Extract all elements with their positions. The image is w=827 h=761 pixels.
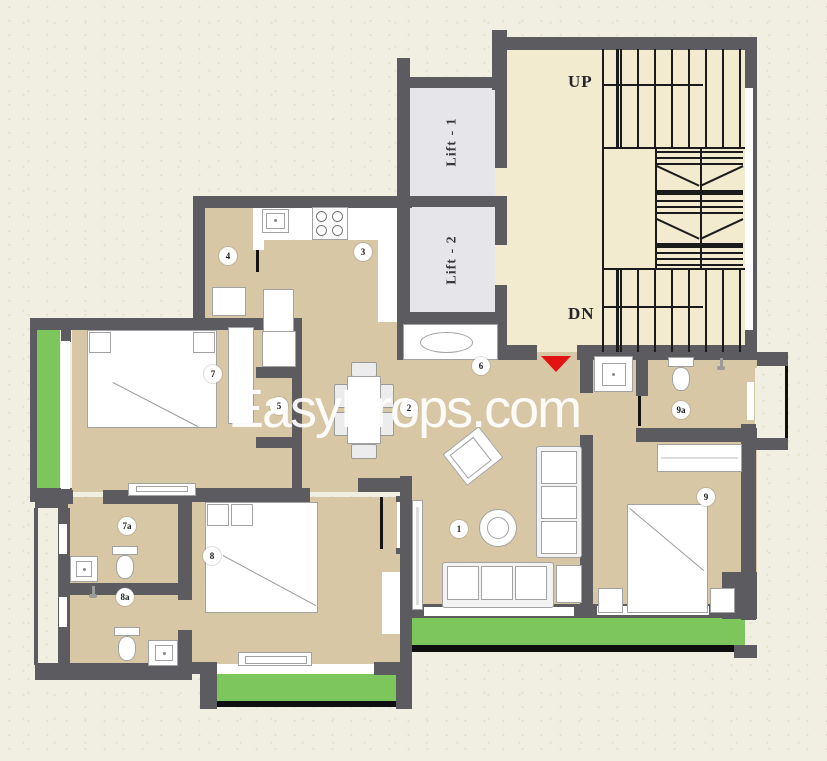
stair-tread-line [603, 84, 703, 86]
wall [397, 77, 507, 88]
window [61, 341, 70, 489]
stairs-down-label: DN [568, 304, 595, 324]
stair-tread-line [722, 270, 724, 352]
wall [734, 645, 757, 658]
room-label-1: 1 [450, 520, 468, 538]
stair-tread-line [616, 270, 619, 352]
room-label-4: 4 [219, 247, 237, 265]
stair-tread-line [657, 258, 743, 260]
toilet-icon [112, 546, 138, 555]
wall [497, 345, 537, 360]
stairs-up-label: UP [568, 72, 593, 92]
stair-tread-line [671, 270, 673, 352]
wall [396, 496, 405, 502]
door-leaf [380, 497, 383, 549]
furniture [487, 517, 509, 539]
wall [178, 488, 310, 502]
sofa-cushion [481, 566, 513, 600]
store-shelf [212, 287, 246, 316]
stair-tread-line [657, 252, 743, 254]
kitchen-sink-icon [262, 209, 289, 233]
window [745, 88, 753, 330]
wall [400, 476, 412, 675]
stair-tread-line [620, 49, 622, 147]
wall [495, 88, 507, 168]
pillow [231, 504, 253, 526]
shape [661, 457, 738, 459]
stair-tread-line [705, 49, 707, 147]
shape [332, 225, 343, 236]
duct-left [38, 508, 58, 665]
window [747, 382, 754, 420]
room-label-9a: 9a [672, 401, 690, 419]
stove-icon [312, 207, 348, 240]
door-leaf [638, 396, 641, 426]
sofa-cushion [447, 566, 479, 600]
bed-9 [627, 504, 708, 613]
wall [507, 37, 757, 50]
stair-tread-line [657, 243, 743, 248]
stair-tread-line [602, 147, 747, 149]
balcony-bottom [412, 618, 745, 645]
balcony-edge-line [215, 701, 400, 707]
wall [396, 548, 405, 554]
balcony-left [36, 328, 60, 490]
wall [256, 367, 302, 378]
stair-tread-line [657, 264, 743, 266]
sofa-cushion [541, 451, 577, 484]
stair-tread-line [620, 270, 622, 352]
wall [580, 357, 593, 393]
shape [316, 211, 327, 222]
stair-tread-line [671, 49, 673, 147]
wall [193, 196, 412, 208]
shape [83, 568, 86, 571]
balcony-bedroom8 [215, 674, 400, 701]
washbasin-icon [594, 356, 633, 392]
wall [34, 508, 38, 665]
stair-tread-line [722, 49, 724, 147]
wall [200, 662, 217, 709]
kitchen-counter-right [378, 240, 398, 322]
wall [35, 497, 68, 508]
stair-tread-line [657, 190, 743, 195]
toilet-icon [114, 627, 140, 636]
lift-2-label: Lift - 2 [445, 235, 461, 284]
shape [316, 225, 327, 236]
side-table [598, 588, 623, 613]
stair-tread-line [616, 49, 619, 147]
stair-tread-line [739, 49, 741, 147]
wall [396, 662, 412, 709]
stair-tread-line [705, 270, 707, 352]
toilet-bowl-icon [116, 555, 134, 579]
coffee-table-icon [479, 509, 517, 547]
pillow [207, 504, 229, 526]
duct-edge-line [785, 366, 788, 441]
wall [495, 196, 507, 245]
tap-icon [92, 586, 95, 596]
stair-tread-line [657, 151, 743, 153]
sofa-cushion [515, 566, 547, 600]
shape [416, 507, 419, 605]
room-label-8: 8 [203, 547, 221, 565]
stair-tread-line [688, 49, 690, 147]
stair-tread-line [637, 49, 639, 147]
stair-tread-line [602, 268, 747, 270]
refrigerator [263, 289, 294, 336]
wall [748, 438, 788, 450]
tv-unit [412, 500, 423, 610]
lift-1: Lift - 1 [410, 88, 495, 196]
side-table [710, 588, 735, 613]
room-label-3: 3 [354, 243, 372, 261]
lift-1-label: Lift - 1 [445, 117, 461, 166]
wall [636, 428, 757, 442]
wall [193, 196, 205, 330]
shape [612, 373, 615, 376]
wash-basin-icon [420, 332, 473, 353]
wall [178, 490, 192, 600]
stair-tread-line [657, 212, 743, 214]
entrance-arrow-icon [541, 356, 571, 372]
sofa-cushion [541, 521, 577, 554]
duct-right [755, 368, 785, 439]
wall [757, 352, 788, 366]
stair-tread-line [657, 163, 743, 165]
room-label-7: 7 [204, 365, 222, 383]
stair-tread-line [603, 306, 703, 308]
window [424, 607, 574, 616]
room-label-8a: 8a [116, 588, 134, 606]
toilet-icon [668, 357, 694, 367]
balcony-edge-line [412, 645, 734, 652]
door-leaf [256, 250, 259, 272]
shape [332, 211, 343, 222]
pillow [193, 332, 215, 353]
stair-tread-line [637, 270, 639, 352]
wall [292, 446, 302, 494]
room-label-7a: 7a [118, 517, 136, 535]
watermark: EasyProps.com [228, 378, 580, 440]
wardrobe-5 [262, 331, 296, 367]
pillow [89, 332, 111, 353]
stair-tread-line [654, 270, 656, 352]
toilet-bowl-icon [672, 367, 690, 391]
stair-tread-line [657, 200, 743, 202]
wall [30, 325, 37, 495]
wall [397, 196, 507, 207]
dresser-8 [238, 652, 312, 666]
stair-tread-line [688, 270, 690, 352]
shape [274, 219, 277, 222]
sofa-cushion [541, 486, 577, 519]
wall [397, 312, 507, 324]
window [59, 524, 67, 554]
toilet-bowl-icon [118, 636, 136, 661]
stair-tread-line [657, 206, 743, 208]
stair-tread-line [657, 157, 743, 159]
shape [163, 652, 166, 655]
wardrobe-9 [657, 444, 742, 472]
furniture [245, 656, 307, 664]
washbasin-icon [70, 556, 98, 582]
washbasin-icon [148, 640, 178, 666]
floor-plan: Lift - 1 Lift - 2 [0, 0, 827, 761]
bedroom8-nook [382, 572, 401, 634]
wall [636, 356, 648, 396]
room-label-6: 6 [472, 357, 490, 375]
dining-chair [351, 362, 377, 377]
dresser-7 [128, 483, 196, 496]
lift-2: Lift - 2 [410, 207, 495, 312]
side-table [556, 565, 582, 603]
window [59, 597, 67, 627]
room-label-9: 9 [697, 488, 715, 506]
stair-tread-line [654, 49, 656, 147]
tap-icon [720, 358, 723, 368]
dining-chair [351, 444, 377, 459]
furniture [136, 486, 188, 492]
stair-tread-line [739, 270, 741, 352]
